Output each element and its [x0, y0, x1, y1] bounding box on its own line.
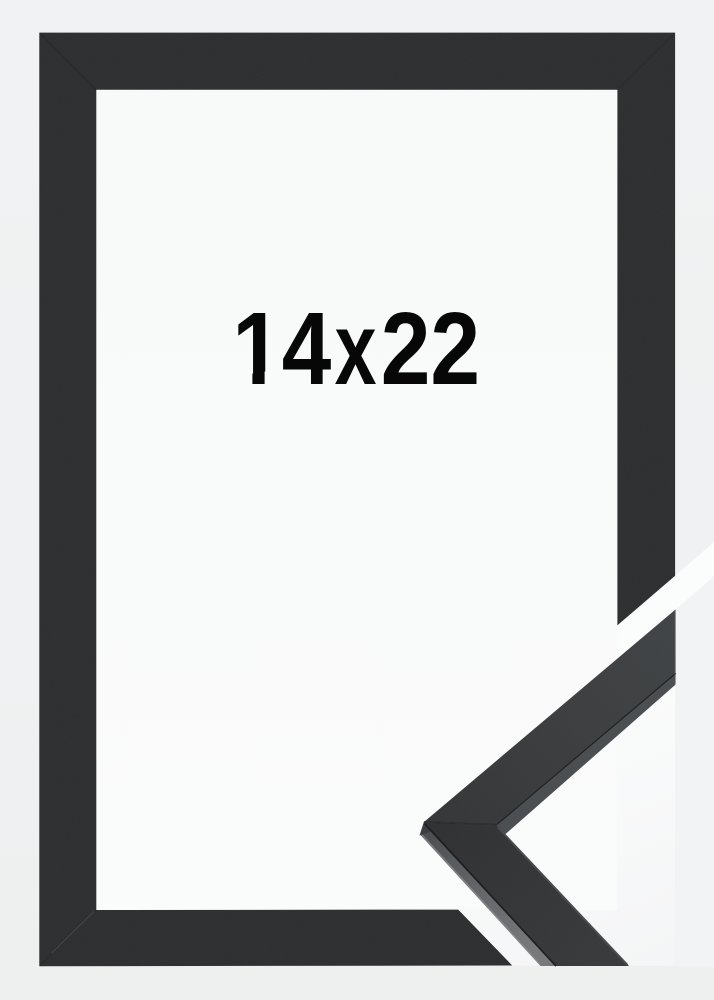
- svg-text:x: x: [335, 293, 377, 407]
- svg-text:14: 14: [232, 292, 331, 406]
- svg-text:22: 22: [381, 292, 480, 406]
